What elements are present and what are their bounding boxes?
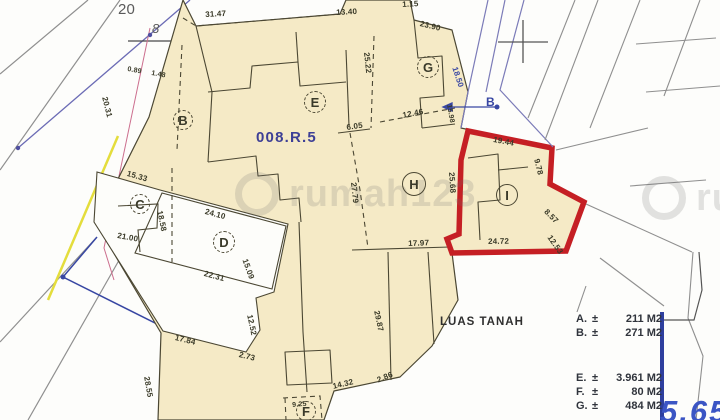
legend-text: 211 M2 — [604, 313, 662, 325]
parcel-label-c: C — [130, 194, 150, 214]
legend-text: 3.961 M2 — [604, 372, 662, 384]
roads-right-layer — [461, 0, 553, 147]
measurement-label: 25.68 — [447, 172, 456, 194]
legend-text: E. — [576, 372, 592, 384]
legend-text: 271 M2 — [604, 327, 662, 339]
measurement-label: 25.22 — [362, 52, 372, 74]
road-name-label: B — [486, 96, 495, 108]
parcel-label-e: E — [304, 91, 326, 113]
measurement-label: 27.79 — [349, 182, 359, 204]
parcel-label-i: I — [496, 184, 518, 206]
legend-text: A. — [576, 313, 592, 325]
measurement-label: 17.97 — [408, 239, 429, 248]
measurement-label: 24.72 — [488, 238, 509, 246]
measurement-label: 31.47 — [205, 10, 226, 19]
legend-text: G. — [576, 400, 592, 412]
legend-row-a: A.±211 M2 — [576, 312, 662, 326]
handwritten-number: 5.65 — [660, 394, 720, 420]
road-number-label: 20 — [118, 2, 135, 17]
parcel-label-b: B — [173, 110, 193, 130]
legend-row-g: G.±484 M2 — [576, 399, 662, 413]
survey-node — [16, 146, 20, 150]
legend-text: ± — [592, 327, 604, 339]
legend-leader-line — [662, 252, 702, 320]
legend-text: ± — [592, 313, 604, 325]
parcel-label-f: F — [296, 401, 316, 420]
legend-text: 80 M2 — [604, 386, 662, 398]
measurement-label: 13.40 — [336, 8, 357, 17]
survey-cross — [498, 20, 548, 63]
measurement-label: 1.15 — [402, 0, 419, 9]
legend-items: A.±211 M2B.±271 M2E.±3.961 M2F.±80 M2G.±… — [576, 312, 662, 413]
legend-text: ± — [592, 386, 604, 398]
legend-text: ± — [592, 400, 604, 412]
legend-row-e: E.±3.961 M2 — [576, 371, 662, 385]
legend-row-f: F.±80 M2 — [576, 385, 662, 399]
legend-text: B. — [576, 327, 592, 339]
parcel-label-h: H — [402, 172, 426, 196]
plot-reference-label: 008.R.5 — [256, 130, 317, 145]
legend-title: LUAS TANAH — [440, 316, 524, 328]
parcel-label-g: G — [417, 56, 439, 78]
site-plan-image: rumah123 rumah123 20831.4713.401.1523.90… — [0, 0, 720, 420]
survey-node — [61, 275, 66, 280]
parcel-label-d: D — [213, 231, 235, 253]
road-number-label: 8 — [152, 22, 159, 35]
legend-text: 484 M2 — [604, 400, 662, 412]
legend-row-b: B.±271 M2 — [576, 326, 662, 340]
legend-text: ± — [592, 372, 604, 384]
legend-text: F. — [576, 386, 592, 398]
